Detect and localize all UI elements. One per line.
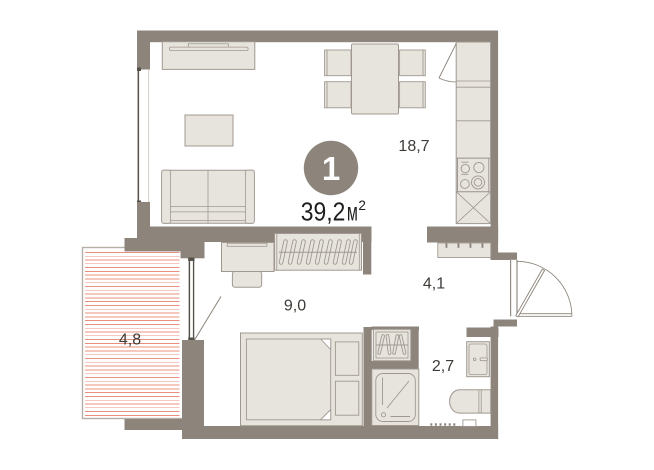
svg-text:18,7: 18,7: [398, 138, 429, 155]
svg-text:2: 2: [358, 198, 366, 213]
svg-text:м: м: [347, 197, 358, 227]
svg-text:9,0: 9,0: [284, 298, 306, 315]
svg-text:4,1: 4,1: [423, 276, 445, 293]
svg-text:1: 1: [322, 150, 340, 187]
svg-text:2,7: 2,7: [432, 358, 454, 375]
svg-text:4,8: 4,8: [119, 332, 141, 349]
svg-text:39,2: 39,2: [301, 197, 346, 227]
